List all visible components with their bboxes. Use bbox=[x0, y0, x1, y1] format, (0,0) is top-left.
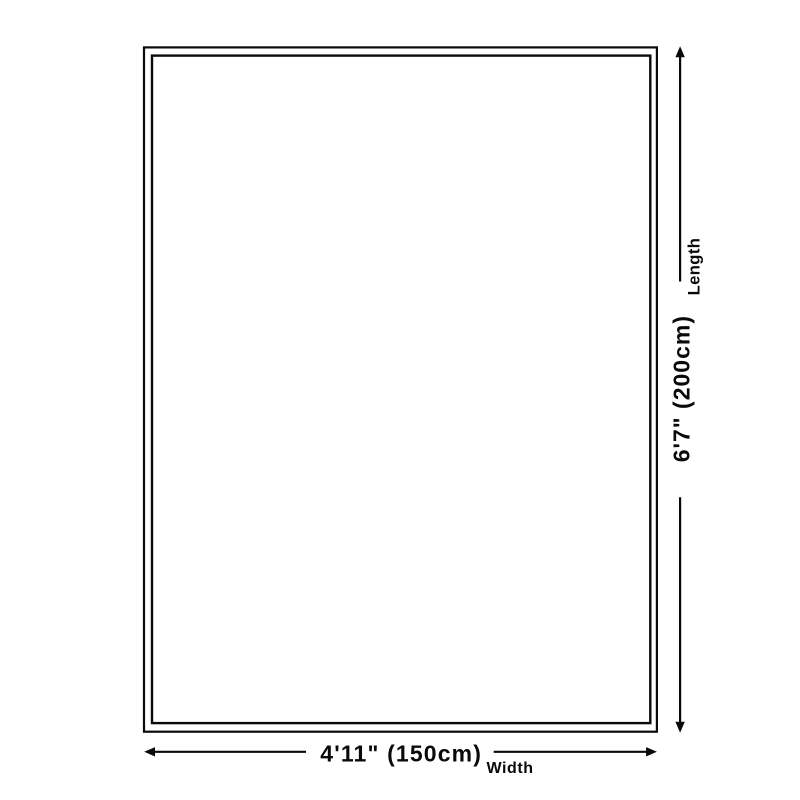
svg-text:6'7" (200cm): 6'7" (200cm) bbox=[668, 315, 694, 462]
svg-text:Width: Width bbox=[487, 760, 534, 777]
svg-text:4'11" (150cm): 4'11" (150cm) bbox=[320, 740, 482, 766]
svg-text:Length: Length bbox=[685, 238, 704, 296]
